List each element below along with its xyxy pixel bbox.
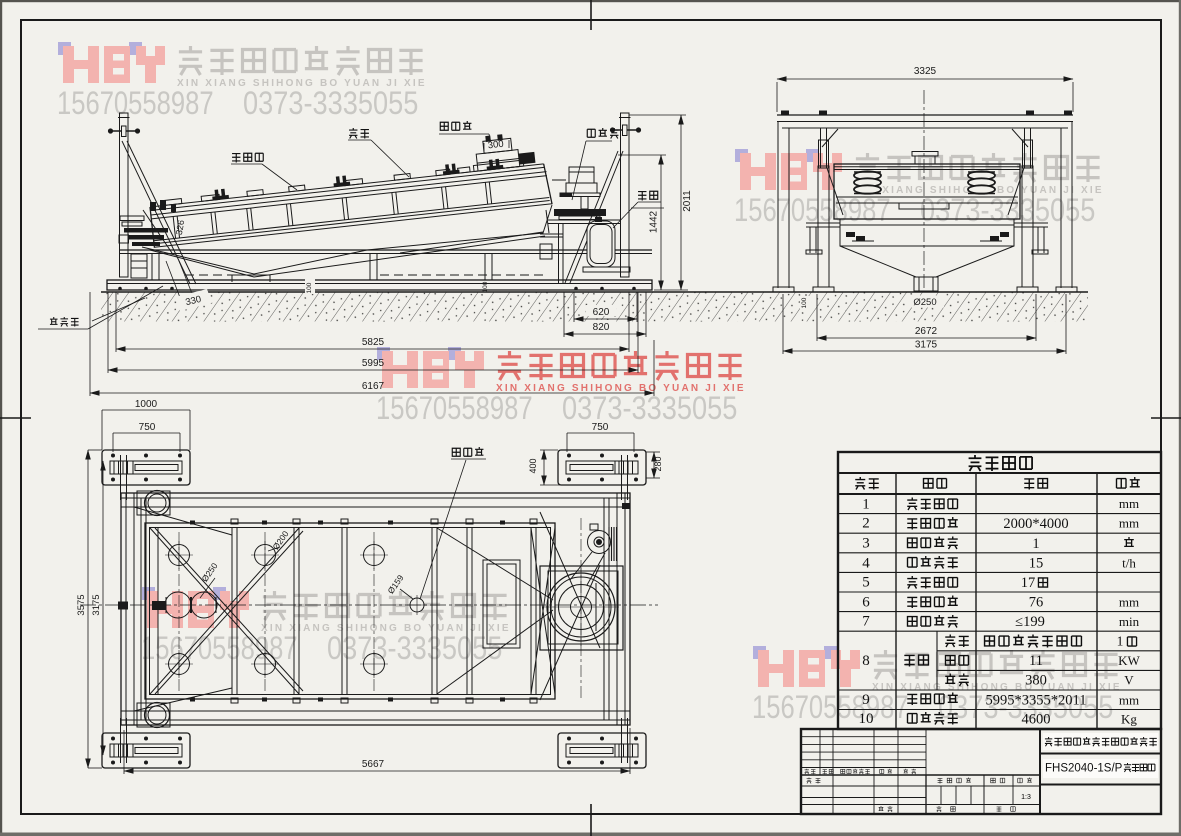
svg-text:17: 17 xyxy=(1021,575,1036,591)
svg-text:3575: 3575 xyxy=(76,594,87,615)
svg-text:820: 820 xyxy=(593,322,610,333)
svg-text:FHS2040-1S/P: FHS2040-1S/P xyxy=(1045,763,1123,775)
svg-text:mm: mm xyxy=(1119,516,1139,531)
svg-text:6167: 6167 xyxy=(362,381,385,392)
svg-text:5667: 5667 xyxy=(362,759,385,770)
svg-text:9: 9 xyxy=(862,692,870,708)
svg-text:5825: 5825 xyxy=(362,337,385,348)
svg-text:1: 1 xyxy=(1032,536,1039,552)
svg-text:5995*3355*2011: 5995*3355*2011 xyxy=(986,693,1087,709)
svg-text:1: 1 xyxy=(862,497,870,513)
svg-text:750: 750 xyxy=(139,422,156,433)
svg-text:1442: 1442 xyxy=(649,210,660,233)
svg-text:76: 76 xyxy=(1029,595,1044,611)
svg-text:2: 2 xyxy=(862,516,870,532)
svg-text:t/h: t/h xyxy=(1122,556,1136,571)
svg-text:5: 5 xyxy=(862,575,870,591)
svg-text:7: 7 xyxy=(862,614,870,630)
svg-text:6: 6 xyxy=(862,595,870,611)
svg-text:3325: 3325 xyxy=(914,66,937,77)
svg-text:8: 8 xyxy=(862,653,870,669)
svg-text:V: V xyxy=(1124,673,1134,688)
svg-text:1:3: 1:3 xyxy=(1021,794,1031,801)
svg-text:3175: 3175 xyxy=(91,594,102,615)
svg-text:2000*4000: 2000*4000 xyxy=(1003,516,1068,532)
svg-text:400: 400 xyxy=(528,458,538,473)
svg-text:3: 3 xyxy=(862,536,870,552)
svg-text:380: 380 xyxy=(1025,673,1047,689)
svg-text:11: 11 xyxy=(1029,653,1043,669)
svg-text:mm: mm xyxy=(1119,496,1139,511)
svg-text:2011: 2011 xyxy=(682,190,693,212)
svg-text:15: 15 xyxy=(1029,556,1044,572)
svg-text:750: 750 xyxy=(592,422,609,433)
svg-text:mm: mm xyxy=(1119,693,1139,708)
svg-text:100: 100 xyxy=(801,297,808,308)
svg-text:4600: 4600 xyxy=(1022,712,1051,728)
svg-text:min: min xyxy=(1119,614,1140,629)
svg-text:1: 1 xyxy=(1117,634,1124,649)
svg-text:10: 10 xyxy=(859,711,874,727)
svg-text:1000: 1000 xyxy=(135,399,158,410)
svg-text:620: 620 xyxy=(593,307,610,318)
svg-text:KW: KW xyxy=(1118,653,1140,668)
svg-text:Kg: Kg xyxy=(1121,712,1137,727)
svg-text:≤199: ≤199 xyxy=(1015,614,1045,630)
svg-text:5995: 5995 xyxy=(362,358,385,369)
svg-text:2672: 2672 xyxy=(915,326,938,337)
svg-text:3175: 3175 xyxy=(915,340,938,351)
svg-text:300: 300 xyxy=(487,139,504,152)
svg-text:Ø250: Ø250 xyxy=(913,297,936,308)
svg-text:280: 280 xyxy=(653,456,663,471)
svg-text:mm: mm xyxy=(1119,595,1139,610)
svg-text:4: 4 xyxy=(862,556,870,572)
svg-text:100: 100 xyxy=(482,281,489,292)
svg-text:100: 100 xyxy=(306,282,313,293)
